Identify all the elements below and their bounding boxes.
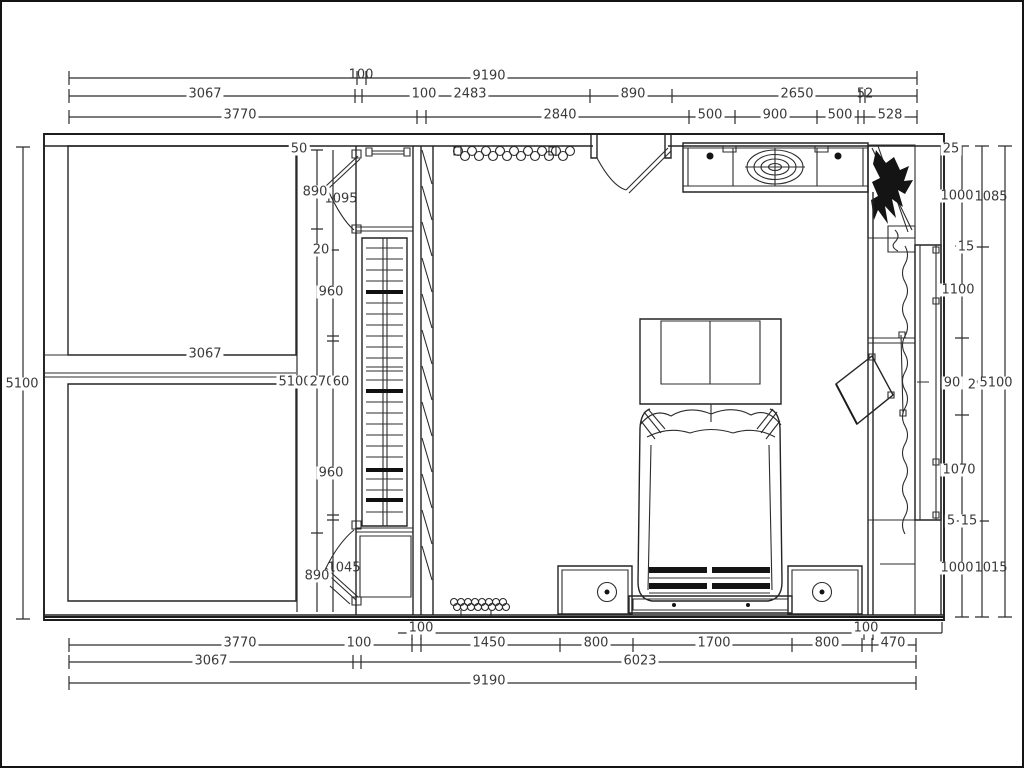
dim-label: 500	[696, 109, 725, 122]
dim-label: 9190	[470, 675, 507, 688]
dim-label: 890	[303, 570, 332, 583]
room-left-bottom	[68, 384, 296, 601]
dim-label: 960	[317, 286, 346, 299]
curtain	[899, 246, 908, 534]
dim-label: 9190	[470, 70, 507, 83]
dim-label: 5100	[3, 378, 40, 391]
dresser	[683, 143, 868, 192]
bed	[629, 319, 792, 613]
dim-label: 2840	[541, 109, 578, 122]
accent-table	[836, 354, 894, 424]
dim-label: 3770	[221, 109, 258, 122]
dim-label: 1070	[940, 464, 977, 477]
dim-label: 1450	[470, 637, 507, 650]
dim-label: 3770	[221, 637, 258, 650]
dim-label: 1100	[939, 284, 976, 297]
dim-label: 2483	[451, 88, 488, 101]
dim-label: 50	[289, 143, 310, 156]
dim-label: 6023	[621, 655, 658, 668]
dim-label: 100	[410, 88, 439, 101]
dim-label: 528	[876, 109, 905, 122]
dim-label: 470	[879, 637, 908, 650]
dim-label: 5100	[977, 377, 1014, 390]
decor-tray	[745, 148, 805, 186]
footboard-bench	[629, 596, 792, 613]
wardrobe	[356, 146, 413, 615]
plant-cabinet	[868, 145, 915, 252]
coat-hooks-bottom	[451, 599, 510, 617]
dim-label: 60	[331, 376, 352, 389]
room-left-top	[68, 146, 296, 355]
dim-label: 25	[941, 143, 962, 156]
folded-blanket	[649, 567, 770, 593]
window	[915, 245, 941, 520]
floorplan-screenshot: 100 9190 3067 100 2483 890 2650 52 3770 …	[0, 0, 1024, 768]
dresser-knob-right	[835, 153, 842, 160]
dresser-knob-left	[707, 153, 714, 160]
room-divider	[44, 355, 296, 377]
wardrobe-door-panel	[421, 146, 433, 615]
dim-label: 900	[761, 109, 790, 122]
dim-label: 100	[407, 622, 436, 635]
dim-label: 800	[582, 637, 611, 650]
dim-label: 2650	[778, 88, 815, 101]
nightstand-right	[788, 566, 862, 614]
dim-label: 100	[345, 637, 374, 650]
dim-label: 1000	[938, 190, 975, 203]
dim-label: 15	[956, 241, 977, 254]
nightstand-left	[558, 566, 632, 614]
dim-label: 5	[945, 515, 957, 528]
plant	[871, 150, 913, 224]
dim-label: 3067	[192, 655, 229, 668]
dim-label: 3067	[186, 348, 223, 361]
coat-hooks-top	[454, 147, 575, 161]
dim-label: 90	[942, 377, 963, 390]
entry-door	[591, 134, 671, 193]
dim-label: 500	[826, 109, 855, 122]
dim-label: 100	[852, 622, 881, 635]
dim-label: 890	[301, 186, 330, 199]
dim-label: 20	[311, 244, 332, 257]
dim-label: 3067	[186, 88, 223, 101]
dim-label: 15	[959, 515, 980, 528]
dim-label: 960	[317, 467, 346, 480]
dim-label: 1700	[695, 637, 732, 650]
headboard	[640, 319, 781, 404]
dim-label: 800	[813, 637, 842, 650]
dim-label: 1000	[938, 562, 975, 575]
floorplan-drawing	[0, 0, 1024, 768]
dim-label: 890	[619, 88, 648, 101]
